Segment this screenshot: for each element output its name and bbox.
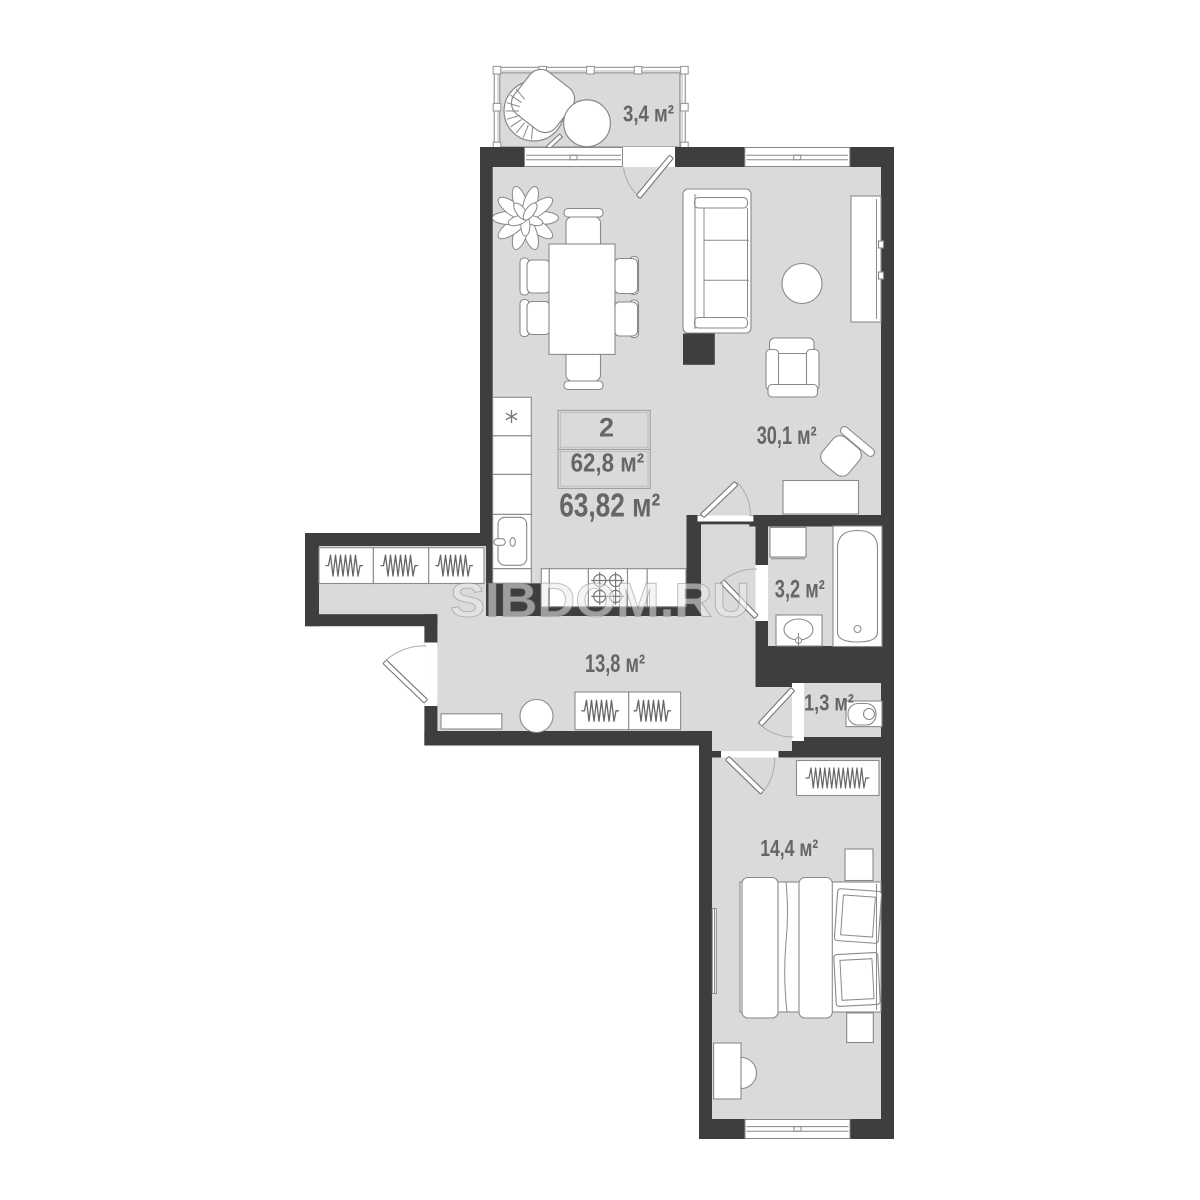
svg-text:13,8 м²: 13,8 м² xyxy=(585,650,645,678)
svg-text:62,8 м²: 62,8 м² xyxy=(571,450,645,478)
svg-text:14,4 м²: 14,4 м² xyxy=(760,835,818,861)
svg-text:3,2 м²: 3,2 м² xyxy=(775,576,825,604)
svg-text:1,3 м²: 1,3 м² xyxy=(804,690,854,716)
svg-text:2: 2 xyxy=(599,412,614,442)
svg-text:30,1 м²: 30,1 м² xyxy=(757,422,817,450)
svg-text:63,82 м²: 63,82 м² xyxy=(559,487,660,524)
svg-text:SIBDOM.RU: SIBDOM.RU xyxy=(450,575,750,628)
svg-text:3,4 м²: 3,4 м² xyxy=(623,101,674,127)
